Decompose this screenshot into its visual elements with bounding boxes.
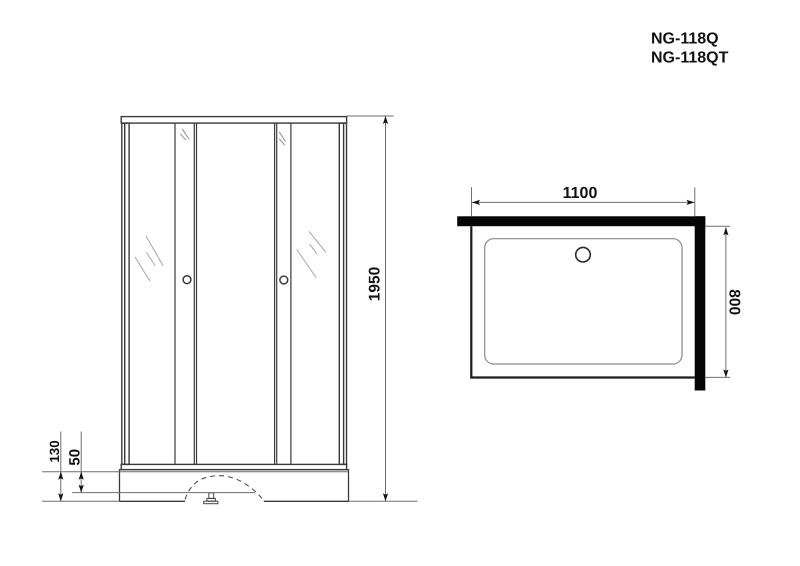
svg-text:130: 130 xyxy=(47,440,62,462)
svg-text:1950: 1950 xyxy=(367,267,384,301)
svg-text:NG-118QT: NG-118QT xyxy=(651,49,729,66)
svg-text:50: 50 xyxy=(66,449,83,466)
svg-text:NG-118Q: NG-118Q xyxy=(651,30,719,47)
svg-text:1100: 1100 xyxy=(563,185,598,202)
svg-text:800: 800 xyxy=(726,289,743,315)
